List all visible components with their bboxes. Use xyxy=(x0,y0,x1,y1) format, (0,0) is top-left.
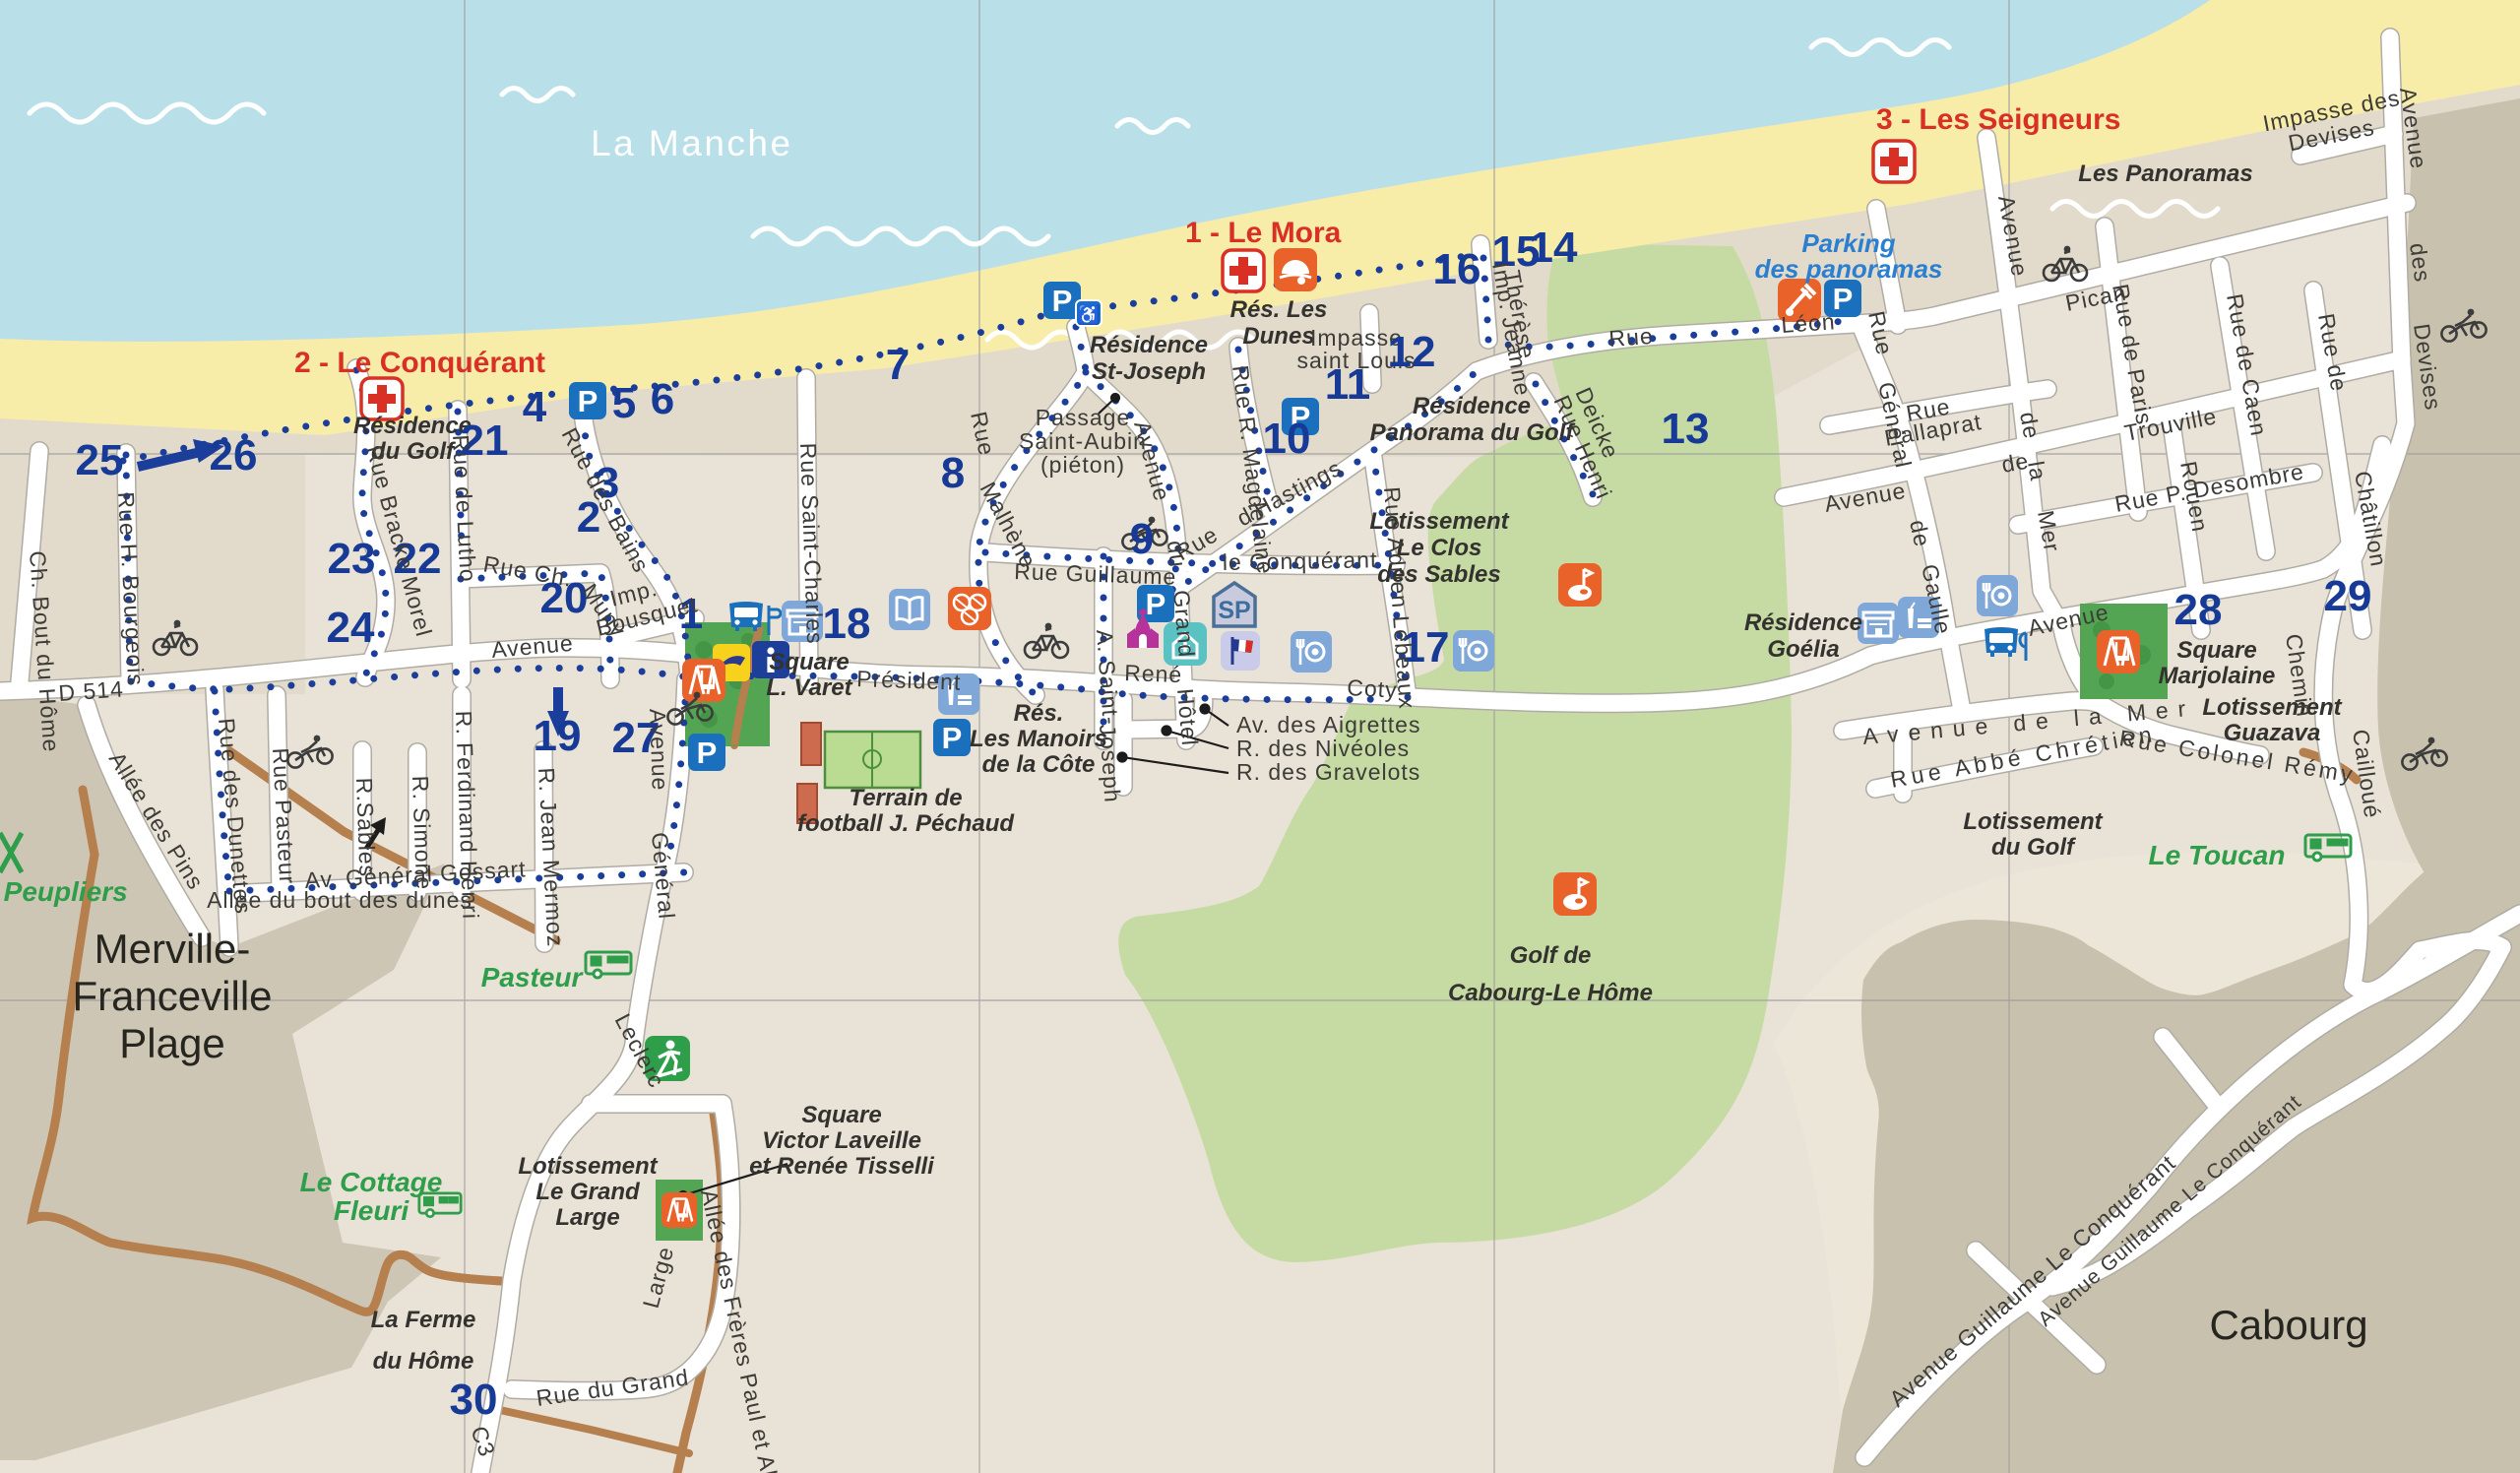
svg-text:♿: ♿ xyxy=(1077,303,1101,326)
svg-text:12: 12 xyxy=(1388,328,1436,376)
svg-text:Le Toucan: Le Toucan xyxy=(2149,840,2286,870)
svg-text:24: 24 xyxy=(327,604,375,652)
svg-text:Merville-: Merville- xyxy=(94,926,251,972)
svg-text:Square: Square xyxy=(801,1102,881,1128)
svg-text:1 - Le Mora: 1 - Le Mora xyxy=(1185,217,1342,249)
svg-text:Passage: Passage xyxy=(1036,405,1131,430)
svg-text:du Golf: du Golf xyxy=(1991,834,2076,861)
svg-text:18: 18 xyxy=(823,600,871,648)
svg-text:8: 8 xyxy=(941,449,965,497)
svg-text:Avenue: Avenue xyxy=(645,708,673,791)
svg-text:s Peupliers: s Peupliers xyxy=(0,876,128,907)
svg-text:football J. Péchaud: football J. Péchaud xyxy=(797,810,1015,837)
svg-text:Lotissement: Lotissement xyxy=(518,1153,658,1180)
svg-text:11: 11 xyxy=(1325,360,1371,409)
svg-text:3 - Les Seigneurs: 3 - Les Seigneurs xyxy=(1876,103,2120,136)
svg-text:23: 23 xyxy=(328,535,376,583)
svg-text:Guazava: Guazava xyxy=(2224,720,2321,746)
svg-text:Marjolaine: Marjolaine xyxy=(2159,663,2276,689)
svg-text:Léon: Léon xyxy=(1781,308,1837,338)
svg-text:7: 7 xyxy=(886,341,910,389)
svg-text:13: 13 xyxy=(1662,405,1710,453)
svg-text:Pasteur: Pasteur xyxy=(481,962,585,993)
svg-text:Saint-Aubin: Saint-Aubin xyxy=(1019,428,1147,454)
svg-text:St-Joseph: St-Joseph xyxy=(1092,358,1206,385)
svg-text:Coty: Coty xyxy=(1347,674,1399,703)
svg-text:Panorama du Golf: Panorama du Golf xyxy=(1370,419,1576,446)
svg-text:Résidence: Résidence xyxy=(1744,609,1862,636)
svg-text:de la Côte: de la Côte xyxy=(982,751,1096,778)
svg-text:28: 28 xyxy=(2174,586,2223,634)
svg-text:29: 29 xyxy=(2324,572,2372,620)
svg-text:Square: Square xyxy=(2176,637,2256,664)
svg-text:et Renée Tisselli: et Renée Tisselli xyxy=(749,1153,935,1180)
svg-text:René: René xyxy=(1124,660,1183,687)
svg-text:30: 30 xyxy=(450,1376,498,1424)
svg-text:L. Varet: L. Varet xyxy=(766,674,852,701)
svg-text:Cabourg: Cabourg xyxy=(2209,1302,2367,1348)
svg-text:9: 9 xyxy=(1130,515,1154,563)
svg-text:Les Manoirs: Les Manoirs xyxy=(970,726,1107,752)
svg-text:Golf de: Golf de xyxy=(1510,942,1592,969)
svg-text:2 - Le Conquérant: 2 - Le Conquérant xyxy=(294,347,545,379)
svg-text:25: 25 xyxy=(76,436,124,484)
svg-text:Résidence: Résidence xyxy=(1090,332,1208,358)
svg-text:5: 5 xyxy=(612,379,636,427)
svg-text:Av. des Aigrettes: Av. des Aigrettes xyxy=(1236,712,1420,737)
svg-text:de: de xyxy=(1999,448,2031,478)
svg-text:Le Grand: Le Grand xyxy=(535,1179,641,1205)
svg-text:Goélia: Goélia xyxy=(1767,636,1839,663)
svg-text:Plage: Plage xyxy=(119,1020,224,1066)
svg-text:du Hôme: du Hôme xyxy=(373,1348,474,1375)
svg-text:(piéton): (piéton) xyxy=(1040,452,1125,478)
svg-text:Les Panoramas: Les Panoramas xyxy=(2078,160,2252,187)
svg-text:des panoramas: des panoramas xyxy=(1755,254,1943,284)
svg-text:La Ferme: La Ferme xyxy=(371,1307,476,1333)
svg-text:D 514: D 514 xyxy=(58,675,125,706)
svg-text:Rue: Rue xyxy=(1608,323,1655,352)
svg-text:le Conquérant: le Conquérant xyxy=(1223,546,1378,575)
svg-text:Hôtel: Hôtel xyxy=(1172,687,1203,747)
svg-text:19: 19 xyxy=(534,712,582,760)
svg-text:Dunes: Dunes xyxy=(1242,323,1314,350)
svg-text:La Manche: La Manche xyxy=(591,123,793,163)
svg-text:Président: Président xyxy=(856,666,962,695)
svg-text:Victor Laveille: Victor Laveille xyxy=(762,1127,921,1154)
svg-text:Le Cottage: Le Cottage xyxy=(300,1167,443,1197)
svg-text:de: de xyxy=(2015,410,2045,441)
svg-text:6: 6 xyxy=(651,375,674,423)
svg-text:Lotissement: Lotissement xyxy=(2202,694,2342,721)
svg-text:Rés. Les: Rés. Les xyxy=(1230,296,1328,323)
svg-text:R.Sables: R.Sables xyxy=(351,777,381,877)
svg-text:des: des xyxy=(2405,241,2435,284)
svg-text:Lotissement: Lotissement xyxy=(1963,808,2103,835)
svg-text:16: 16 xyxy=(1433,245,1481,293)
svg-text:26: 26 xyxy=(210,431,258,480)
svg-text:R. des Gravelots: R. des Gravelots xyxy=(1236,759,1420,785)
svg-text:Square: Square xyxy=(769,649,849,675)
svg-text:4: 4 xyxy=(523,383,547,431)
svg-text:Cabourg-Le Hôme: Cabourg-Le Hôme xyxy=(1448,980,1653,1006)
svg-text:Large: Large xyxy=(555,1204,619,1231)
svg-text:Rés.: Rés. xyxy=(1014,700,1064,727)
svg-text:Terrain de: Terrain de xyxy=(849,785,962,811)
svg-text:Franceville: Franceville xyxy=(72,973,272,1019)
svg-text:Fleuri: Fleuri xyxy=(334,1195,409,1226)
svg-text:R. des Nivéoles: R. des Nivéoles xyxy=(1236,736,1410,761)
svg-text:10: 10 xyxy=(1263,415,1311,463)
